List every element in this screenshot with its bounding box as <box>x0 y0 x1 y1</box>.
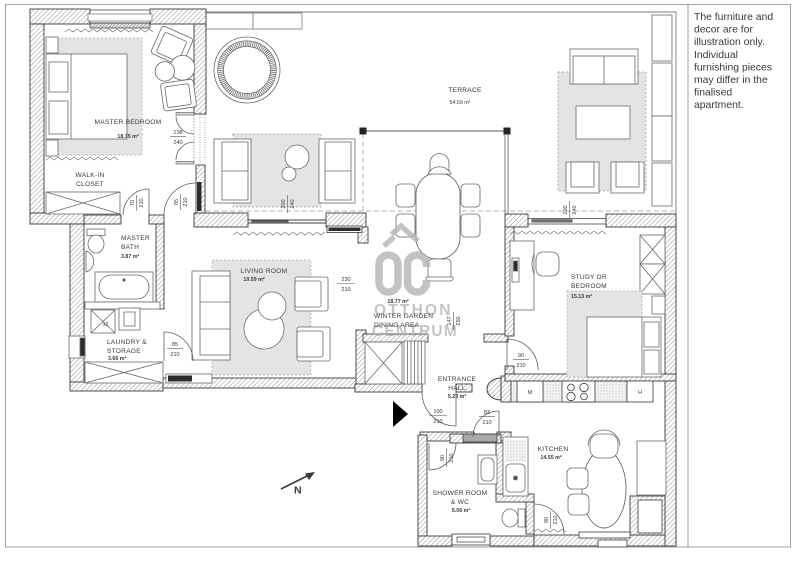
svg-text:210: 210 <box>170 352 179 358</box>
svg-text:H: H <box>638 390 642 396</box>
svg-text:14.55 m²: 14.55 m² <box>540 455 561 461</box>
svg-text:210: 210 <box>516 363 525 369</box>
svg-text:90: 90 <box>544 517 550 523</box>
svg-text:MASTER: MASTER <box>121 235 150 242</box>
svg-text:54.59 m²: 54.59 m² <box>450 100 471 106</box>
svg-text:SHOWER ROOM: SHOWER ROOM <box>433 490 488 497</box>
svg-text:100: 100 <box>433 409 442 415</box>
svg-text:250: 250 <box>456 316 462 325</box>
svg-text:200: 200 <box>281 199 287 208</box>
svg-text:90: 90 <box>518 353 524 359</box>
svg-text:apartment.: apartment. <box>694 100 744 111</box>
svg-text:may differ in the: may differ in the <box>694 75 768 86</box>
svg-text:KITCHEN: KITCHEN <box>538 446 569 453</box>
svg-text:85: 85 <box>174 199 180 205</box>
svg-text:200: 200 <box>563 205 569 214</box>
svg-text:WALK-IN: WALK-IN <box>76 172 105 179</box>
svg-text:BATH: BATH <box>121 244 139 251</box>
svg-text:240: 240 <box>572 205 578 214</box>
svg-text:The furniture and: The furniture and <box>694 12 773 23</box>
svg-text:3.66 m²: 3.66 m² <box>108 356 126 362</box>
svg-text:STUDY OR: STUDY OR <box>571 274 607 281</box>
svg-text:70: 70 <box>130 200 136 206</box>
svg-text:WINTER GARDEN: WINTER GARDEN <box>374 313 433 320</box>
svg-text:x2: x2 <box>103 322 109 328</box>
svg-text:240: 240 <box>173 140 182 146</box>
svg-text:18.75 m²: 18.75 m² <box>117 134 138 140</box>
svg-text:STORAGE: STORAGE <box>107 348 141 355</box>
svg-text:decor are for: decor are for <box>694 25 753 36</box>
svg-text:90: 90 <box>440 455 446 461</box>
svg-text:3.87 m²: 3.87 m² <box>121 254 139 260</box>
svg-text:DINING AREA: DINING AREA <box>374 322 420 329</box>
svg-text:& WC: & WC <box>451 499 469 506</box>
svg-text:18.77 m²: 18.77 m² <box>387 299 408 305</box>
svg-text:illustration only.: illustration only. <box>694 37 765 48</box>
svg-text:210: 210 <box>183 197 189 206</box>
svg-text:210: 210 <box>341 287 350 293</box>
svg-text:15.13 m²: 15.13 m² <box>571 294 592 300</box>
svg-text:furnishing pieces: furnishing pieces <box>694 62 772 73</box>
svg-text:LAUNDRY &: LAUNDRY & <box>107 339 147 346</box>
svg-text:M: M <box>528 390 532 396</box>
svg-text:N: N <box>294 485 302 497</box>
svg-text:BEDROOM: BEDROOM <box>571 283 607 290</box>
svg-text:210: 210 <box>482 420 491 426</box>
svg-text:240: 240 <box>290 199 296 208</box>
svg-text:83: 83 <box>484 410 490 416</box>
svg-text:138: 138 <box>173 130 182 136</box>
svg-text:210: 210 <box>449 453 455 462</box>
svg-text:ENTRANCE: ENTRANCE <box>438 376 477 383</box>
svg-text:210: 210 <box>553 515 559 524</box>
svg-text:CLOSET: CLOSET <box>76 181 104 188</box>
svg-text:5.06 m²: 5.06 m² <box>452 508 470 514</box>
svg-text:HALL: HALL <box>448 385 466 392</box>
svg-text:19.59 m²: 19.59 m² <box>243 277 264 283</box>
svg-text:Individual: Individual <box>694 50 738 61</box>
svg-text:230: 230 <box>341 277 350 283</box>
svg-text:finalised: finalised <box>694 88 732 99</box>
svg-text:TERRACE: TERRACE <box>448 87 482 94</box>
svg-text:85: 85 <box>172 342 178 348</box>
svg-text:147: 147 <box>447 316 453 325</box>
svg-text:210: 210 <box>139 198 145 207</box>
svg-text:LIVING ROOM: LIVING ROOM <box>241 268 288 275</box>
svg-text:5.23 m²: 5.23 m² <box>448 394 466 400</box>
svg-text:MASTER BEDROOM: MASTER BEDROOM <box>95 119 162 126</box>
svg-text:210: 210 <box>433 419 442 425</box>
